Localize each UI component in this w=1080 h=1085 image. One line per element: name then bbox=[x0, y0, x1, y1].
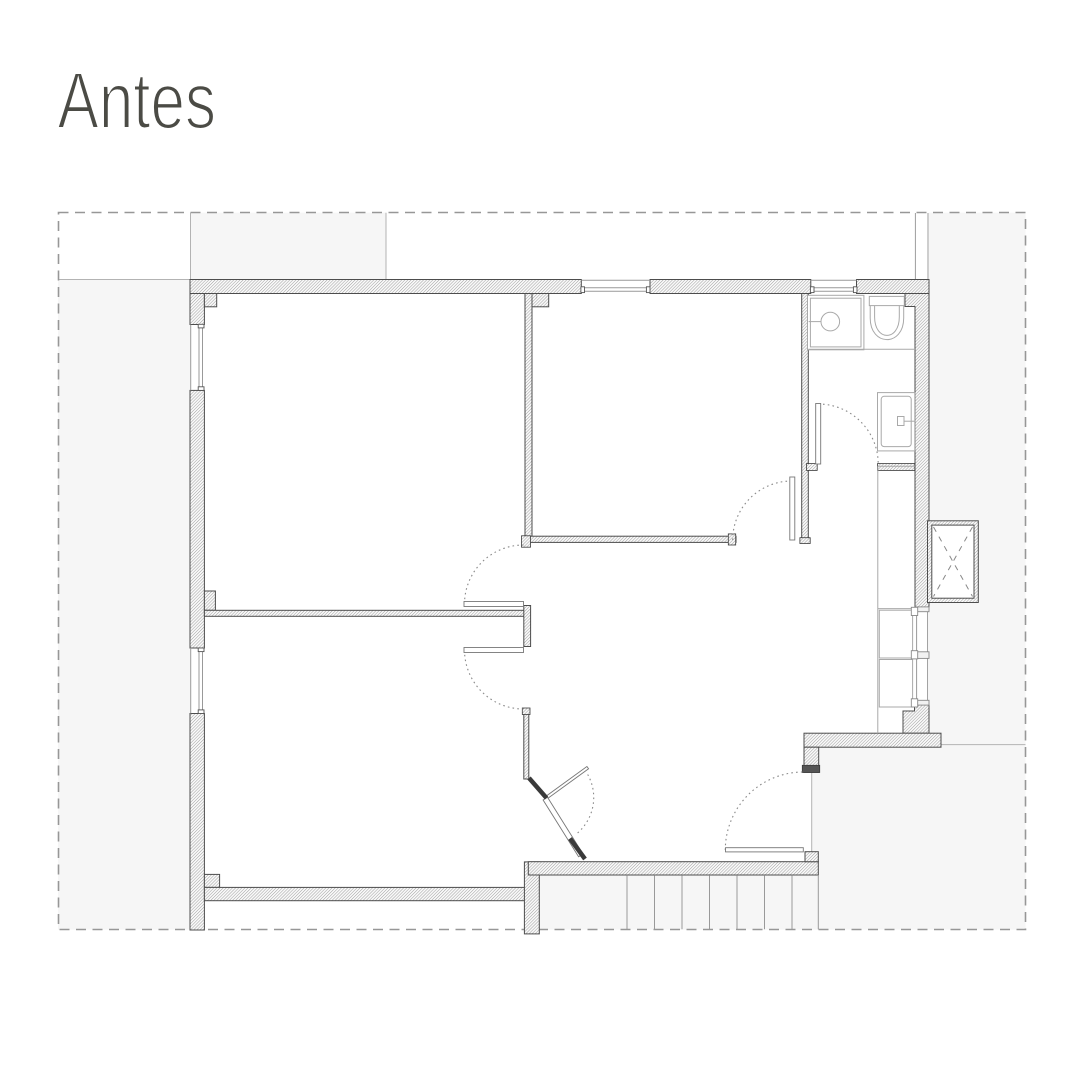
svg-text:Antes: Antes bbox=[58, 56, 217, 145]
